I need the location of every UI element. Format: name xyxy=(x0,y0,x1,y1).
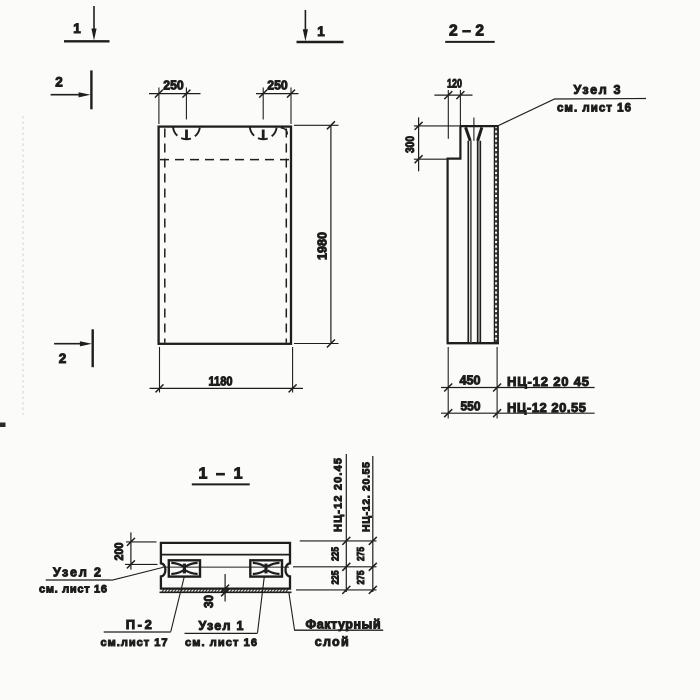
svg-text:450: 450 xyxy=(460,373,481,388)
svg-text:120: 120 xyxy=(447,77,462,91)
svg-text:НЦ-12 20.45: НЦ-12 20.45 xyxy=(333,458,345,532)
svg-text:225: 225 xyxy=(330,547,342,561)
svg-text:П-2: П-2 xyxy=(126,617,152,632)
svg-text:1–1: 1–1 xyxy=(199,466,243,483)
svg-text:см.лист 17: см.лист 17 xyxy=(101,637,168,649)
svg-text:2: 2 xyxy=(55,75,63,90)
svg-text:2–2: 2–2 xyxy=(449,23,484,40)
svg-text:1980: 1980 xyxy=(316,232,330,260)
svg-text:275: 275 xyxy=(355,547,367,561)
svg-text:200: 200 xyxy=(114,543,126,561)
svg-text:см. лист 16: см. лист 16 xyxy=(557,103,631,115)
svg-text:Узел 1: Узел 1 xyxy=(199,619,244,633)
svg-text:Фактурный: Фактурный xyxy=(306,618,381,632)
svg-text:Узел 2: Узел 2 xyxy=(53,566,101,580)
svg-text:Узел 3: Узел 3 xyxy=(574,83,621,97)
svg-text:НЦ-12 20 45: НЦ-12 20 45 xyxy=(507,374,589,389)
svg-text:слой: слой xyxy=(315,635,349,649)
svg-text:300: 300 xyxy=(403,136,417,153)
svg-text:1: 1 xyxy=(73,21,81,36)
svg-text:НЦ-12 20.55: НЦ-12 20.55 xyxy=(507,400,586,415)
svg-text:30: 30 xyxy=(202,595,216,608)
svg-text:225: 225 xyxy=(330,570,342,584)
svg-text:2: 2 xyxy=(59,351,67,366)
svg-text:1: 1 xyxy=(317,24,325,39)
svg-text:250: 250 xyxy=(267,78,288,93)
svg-text:550: 550 xyxy=(461,399,481,414)
svg-text:см. лист 16: см. лист 16 xyxy=(185,637,257,649)
svg-text:см. лист 16: см. лист 16 xyxy=(39,584,107,596)
svg-text:1180: 1180 xyxy=(209,375,233,389)
svg-text:250: 250 xyxy=(163,78,184,93)
svg-text:275: 275 xyxy=(355,570,367,584)
svg-text:НЦ-12. 20.55: НЦ-12. 20.55 xyxy=(361,462,373,532)
